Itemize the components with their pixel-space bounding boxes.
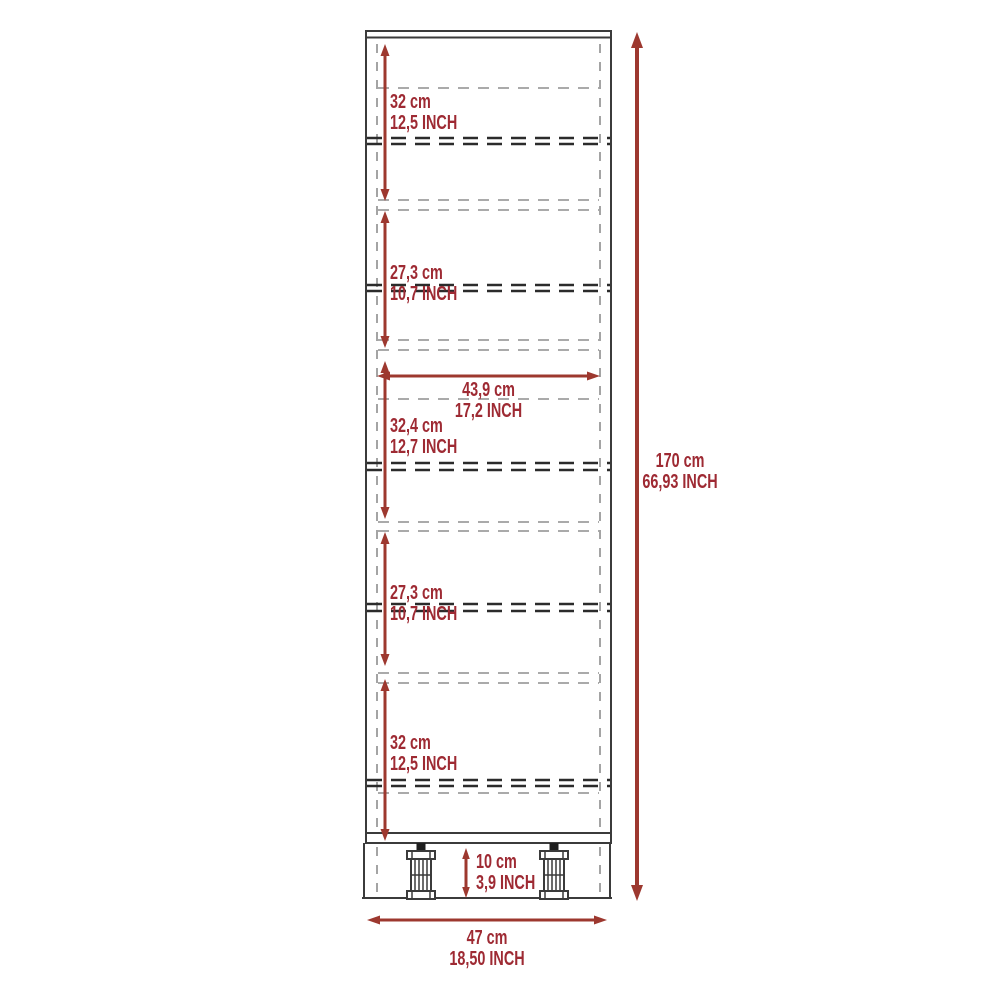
dimension-arrow-leg-height <box>462 848 470 898</box>
dimension-cm: 27,3 cm <box>390 583 457 604</box>
cabinet-line-drawing <box>0 0 1000 1000</box>
shelf-height-dimension-4: 27,3 cm 10,7 INCH <box>390 583 457 625</box>
shelf-height-dimension-2: 27,3 cm 10,7 INCH <box>390 263 457 305</box>
dimension-inch: 10,7 INCH <box>390 604 457 625</box>
dimension-inch: 12,7 INCH <box>390 437 457 458</box>
dimension-inch: 10,7 INCH <box>390 284 457 305</box>
shelf-height-dimension-3: 32,4 cm 12,7 INCH <box>390 416 457 458</box>
dimension-cm: 47 cm <box>401 928 574 949</box>
leg-height-dimension: 10 cm 3,9 INCH <box>476 852 535 894</box>
dimension-inch: 18,50 INCH <box>401 949 574 970</box>
dimension-inch: 66,93 INCH <box>638 472 722 493</box>
interior-width-dimension: 43,9 cm 17,2 INCH <box>408 380 569 422</box>
dimension-diagram: 32 cm 12,5 INCH 27,3 cm 10,7 INCH 32,4 c… <box>0 0 1000 1000</box>
dimension-cm: 43,9 cm <box>408 380 569 401</box>
cabinet-height-dimension: 170 cm 66,93 INCH <box>638 451 722 493</box>
dimension-cm: 32 cm <box>390 92 457 113</box>
left-leg <box>407 843 435 899</box>
dimension-cm: 170 cm <box>638 451 722 472</box>
dimension-inch: 3,9 INCH <box>476 873 535 894</box>
shelf-height-dimension-5: 32 cm 12,5 INCH <box>390 733 457 775</box>
dimension-cm: 10 cm <box>476 852 535 873</box>
dimension-cm: 27,3 cm <box>390 263 457 284</box>
dimension-cm: 32 cm <box>390 733 457 754</box>
right-leg <box>540 843 568 899</box>
dimension-arrow-overall-width <box>367 916 607 925</box>
dimension-inch: 12,5 INCH <box>390 113 457 134</box>
dimension-inch: 12,5 INCH <box>390 754 457 775</box>
shelf-height-dimension-1: 32 cm 12,5 INCH <box>390 92 457 134</box>
dimension-inch: 17,2 INCH <box>408 401 569 422</box>
cabinet-width-dimension: 47 cm 18,50 INCH <box>401 928 574 970</box>
